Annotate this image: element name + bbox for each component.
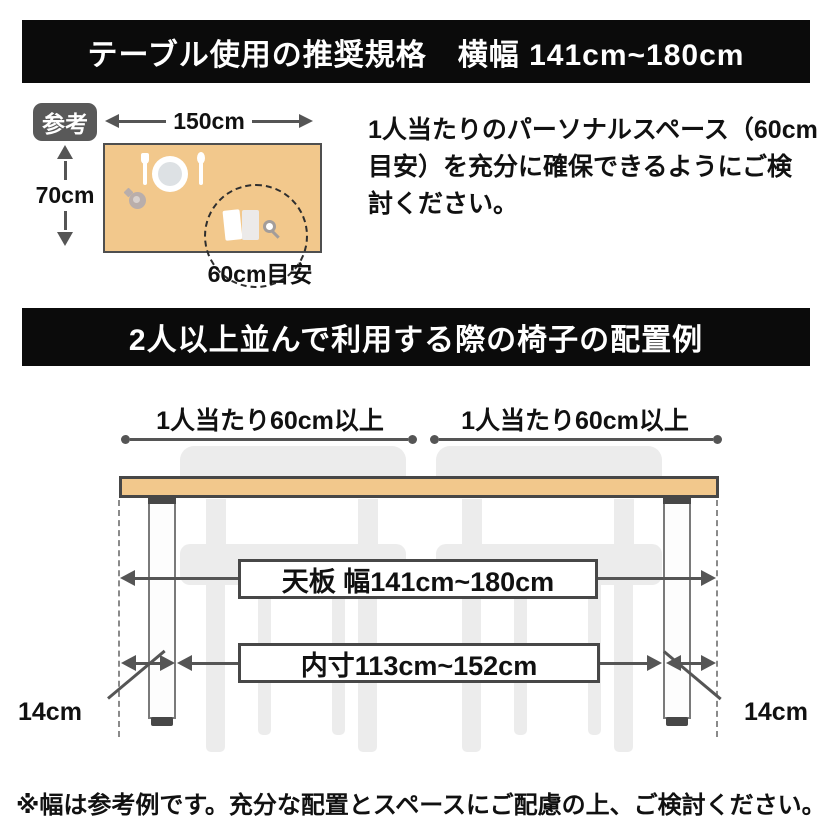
chair-leg [614,585,633,752]
personal-space-note: 1人当たりのパーソナルスペース（60cm 目安）を充分に確保できるようにご検 討… [368,112,820,223]
book-right-page-icon [242,210,259,240]
arrow-right-icon [701,655,716,671]
chair-leg [206,585,225,752]
middle-banner-title: 2人以上並んで利用する際の椅子の配置例 [22,308,810,366]
book-left-page-icon [222,209,242,241]
plate-inner-icon [158,162,182,186]
chair-back-post [358,499,378,545]
chair-back-post [206,499,226,545]
table-foot-right [666,717,688,726]
arrow-down-icon [57,232,73,246]
arrow-right-icon [160,655,175,671]
tabletop-front-view [119,476,719,498]
infographic-page: テーブル使用の推奨規格 横幅 141cm~180cm 参考 150cm 70cm… [0,0,831,831]
table-edge-guide-left [118,500,120,737]
arrow-right-icon [701,570,716,586]
table-edge-guide-right [716,500,718,737]
arrow-left-icon [121,655,136,671]
table-foot-left [151,717,173,726]
tabletop-width-box: 天板 幅141cm~180cm [238,559,598,599]
per-person-label-right: 1人当たり60cm以上 [430,401,720,437]
per-person-label-left: 1人当たり60cm以上 [124,401,416,437]
inner-width-box: 内寸113cm~152cm [238,643,600,683]
reference-badge: 参考 [33,103,97,141]
table-depth-dimension: 70cm [29,145,101,246]
table-leg-right [663,498,691,719]
chair-back-post [614,499,634,545]
table-depth-label: 70cm [36,182,95,209]
arrow-up-icon [57,145,73,159]
top-banner-title: テーブル使用の推奨規格 横幅 141cm~180cm [22,20,810,83]
chair-back-post [462,499,482,545]
chair-backrest [436,446,662,477]
leg-offset-label-right: 14cm [744,698,808,727]
arrow-left-icon [177,655,192,671]
table-width-dimension: 150cm [105,107,313,135]
table-width-label: 150cm [166,108,252,135]
leg-offset-label-left: 14cm [18,698,82,727]
personal-space-label: 60cm目安 [200,255,320,289]
arrow-left-icon [120,570,135,586]
chair-backrest [180,446,406,477]
arrow-right-icon [299,114,313,128]
arrow-right-icon [647,655,662,671]
table-leg-left [148,498,176,719]
arrow-left-icon [105,114,119,128]
footer-note: ※幅は参考例です。充分な配置とスペースにご配慮の上、ご検討ください。 [16,785,826,820]
